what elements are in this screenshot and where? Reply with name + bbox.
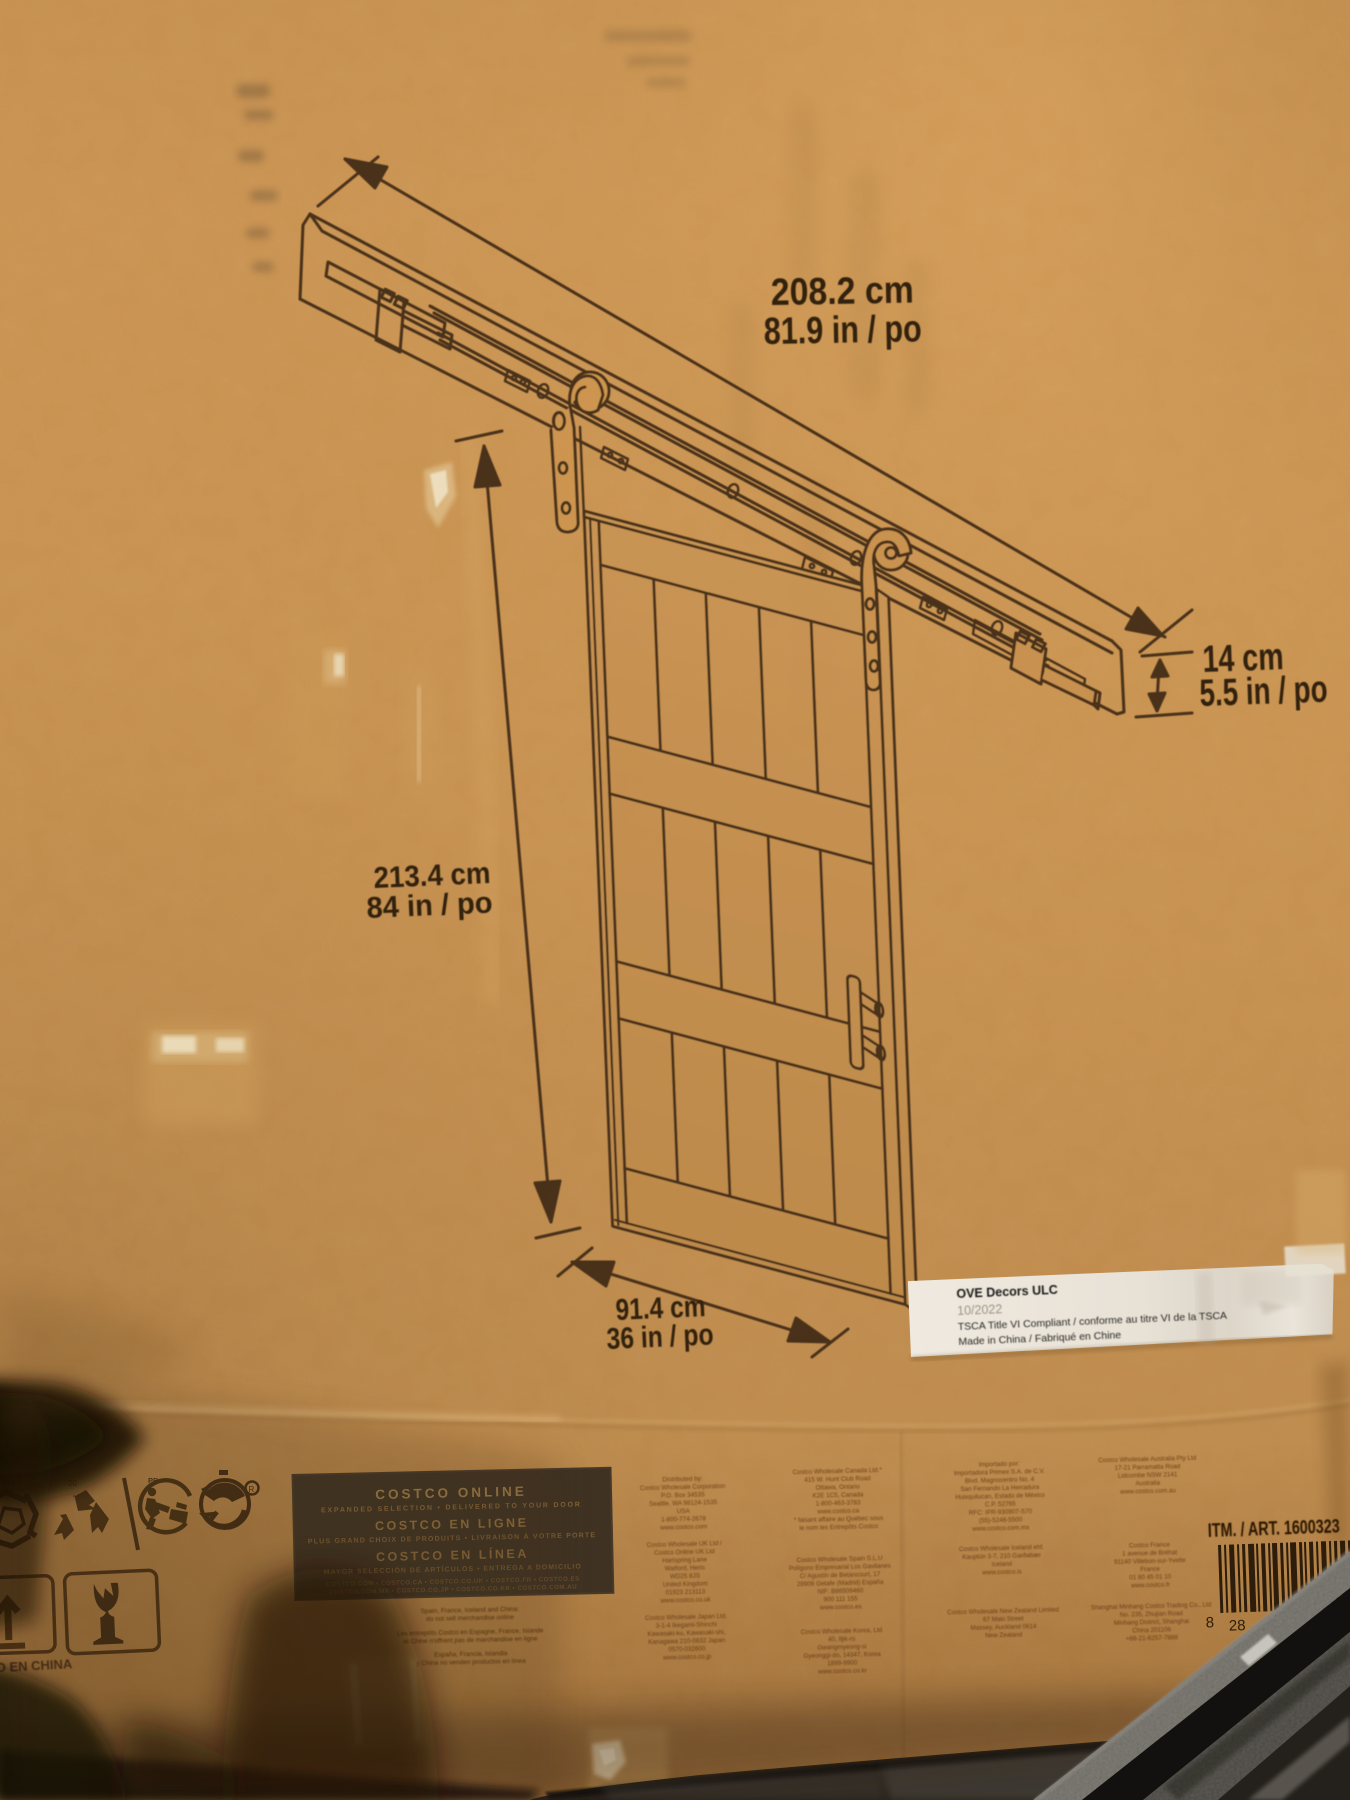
svg-text:www.costco.com.au: www.costco.com.au [1119, 1487, 1176, 1495]
svg-text:NIF: B86509460: NIF: B86509460 [817, 1587, 864, 1595]
svg-text:USA: USA [677, 1508, 691, 1515]
svg-text:208.2 cm: 208.2 cm [770, 270, 914, 314]
svg-text:WD25 8JS: WD25 8JS [670, 1573, 700, 1581]
svg-text:10/2022: 10/2022 [957, 1302, 1003, 1318]
svg-text:New Zealand: New Zealand [985, 1631, 1023, 1639]
svg-text:Iceland: Iceland [992, 1561, 1013, 1569]
svg-text:P.O. Box 34535: P.O. Box 34535 [661, 1491, 705, 1499]
svg-text:www.costco.is: www.costco.is [981, 1568, 1022, 1576]
svg-text:36 in / po: 36 in / po [606, 1318, 714, 1356]
svg-text:www.costco.co.uk: www.costco.co.uk [660, 1596, 712, 1604]
svg-text:1899-9900: 1899-9900 [827, 1660, 858, 1668]
svg-text:Watford, Herts: Watford, Herts [665, 1564, 706, 1572]
svg-text:China 201106: China 201106 [1132, 1626, 1171, 1634]
svg-text:Australia: Australia [1135, 1480, 1160, 1488]
svg-text:(55)-5246-5500: (55)-5246-5500 [979, 1516, 1023, 1524]
svg-text:France: France [1140, 1566, 1160, 1574]
svg-text:K2E 1C5, Canada: K2E 1C5, Canada [812, 1491, 863, 1499]
svg-text:1 avenue de Bréhat: 1 avenue de Bréhat [1122, 1549, 1177, 1557]
svg-text:01923 213113: 01923 213113 [665, 1588, 705, 1596]
svg-text:0570-032600: 0570-032600 [668, 1645, 706, 1653]
svg-text:81.9 in / po: 81.9 in / po [763, 308, 922, 353]
svg-text:Gwangmyeong-si: Gwangmyeong-si [817, 1643, 866, 1651]
svg-text:www.costco.fr: www.costco.fr [1130, 1581, 1170, 1589]
svg-text:www.costco.co.kr: www.costco.co.kr [817, 1667, 867, 1675]
svg-text:01 80 45 01 10: 01 80 45 01 10 [1129, 1573, 1172, 1581]
svg-text:28: 28 [1229, 1617, 1246, 1635]
svg-text:Costco France: Costco France [1129, 1541, 1171, 1549]
svg-text:84 in / po: 84 in / po [366, 887, 493, 925]
svg-text:1-800-774-2678: 1-800-774-2678 [661, 1515, 706, 1523]
svg-text:Ottawa, Ontario: Ottawa, Ontario [816, 1483, 861, 1491]
svg-text:www.costco.co.jp: www.costco.co.jp [662, 1653, 712, 1661]
svg-text:67 Maki Street: 67 Maki Street [983, 1615, 1024, 1623]
svg-text:www.costco.ca: www.costco.ca [816, 1507, 859, 1515]
svg-text:United Kingdom: United Kingdom [663, 1580, 708, 1588]
svg-text:C.P. 52765: C.P. 52765 [985, 1501, 1016, 1509]
svg-text:+86-21-6257-7888: +86-21-6257-7888 [1126, 1634, 1179, 1642]
svg-text:40, Iljik-ro: 40, Iljik-ro [828, 1636, 856, 1644]
svg-text:www.costco.com: www.costco.com [659, 1523, 707, 1531]
svg-text:1-800-463-3783: 1-800-463-3783 [816, 1499, 861, 1507]
svg-text:Distributed by:: Distributed by: [662, 1475, 703, 1483]
svg-text:900 111 155: 900 111 155 [823, 1596, 858, 1604]
svg-text:Hartspring Lane: Hartspring Lane [662, 1556, 707, 1564]
svg-text:5.5 in / po: 5.5 in / po [1199, 669, 1328, 715]
svg-text:8: 8 [1205, 1614, 1214, 1631]
svg-text:Importado por:: Importado por: [979, 1460, 1020, 1468]
svg-text:www.costco.es: www.costco.es [819, 1603, 862, 1611]
